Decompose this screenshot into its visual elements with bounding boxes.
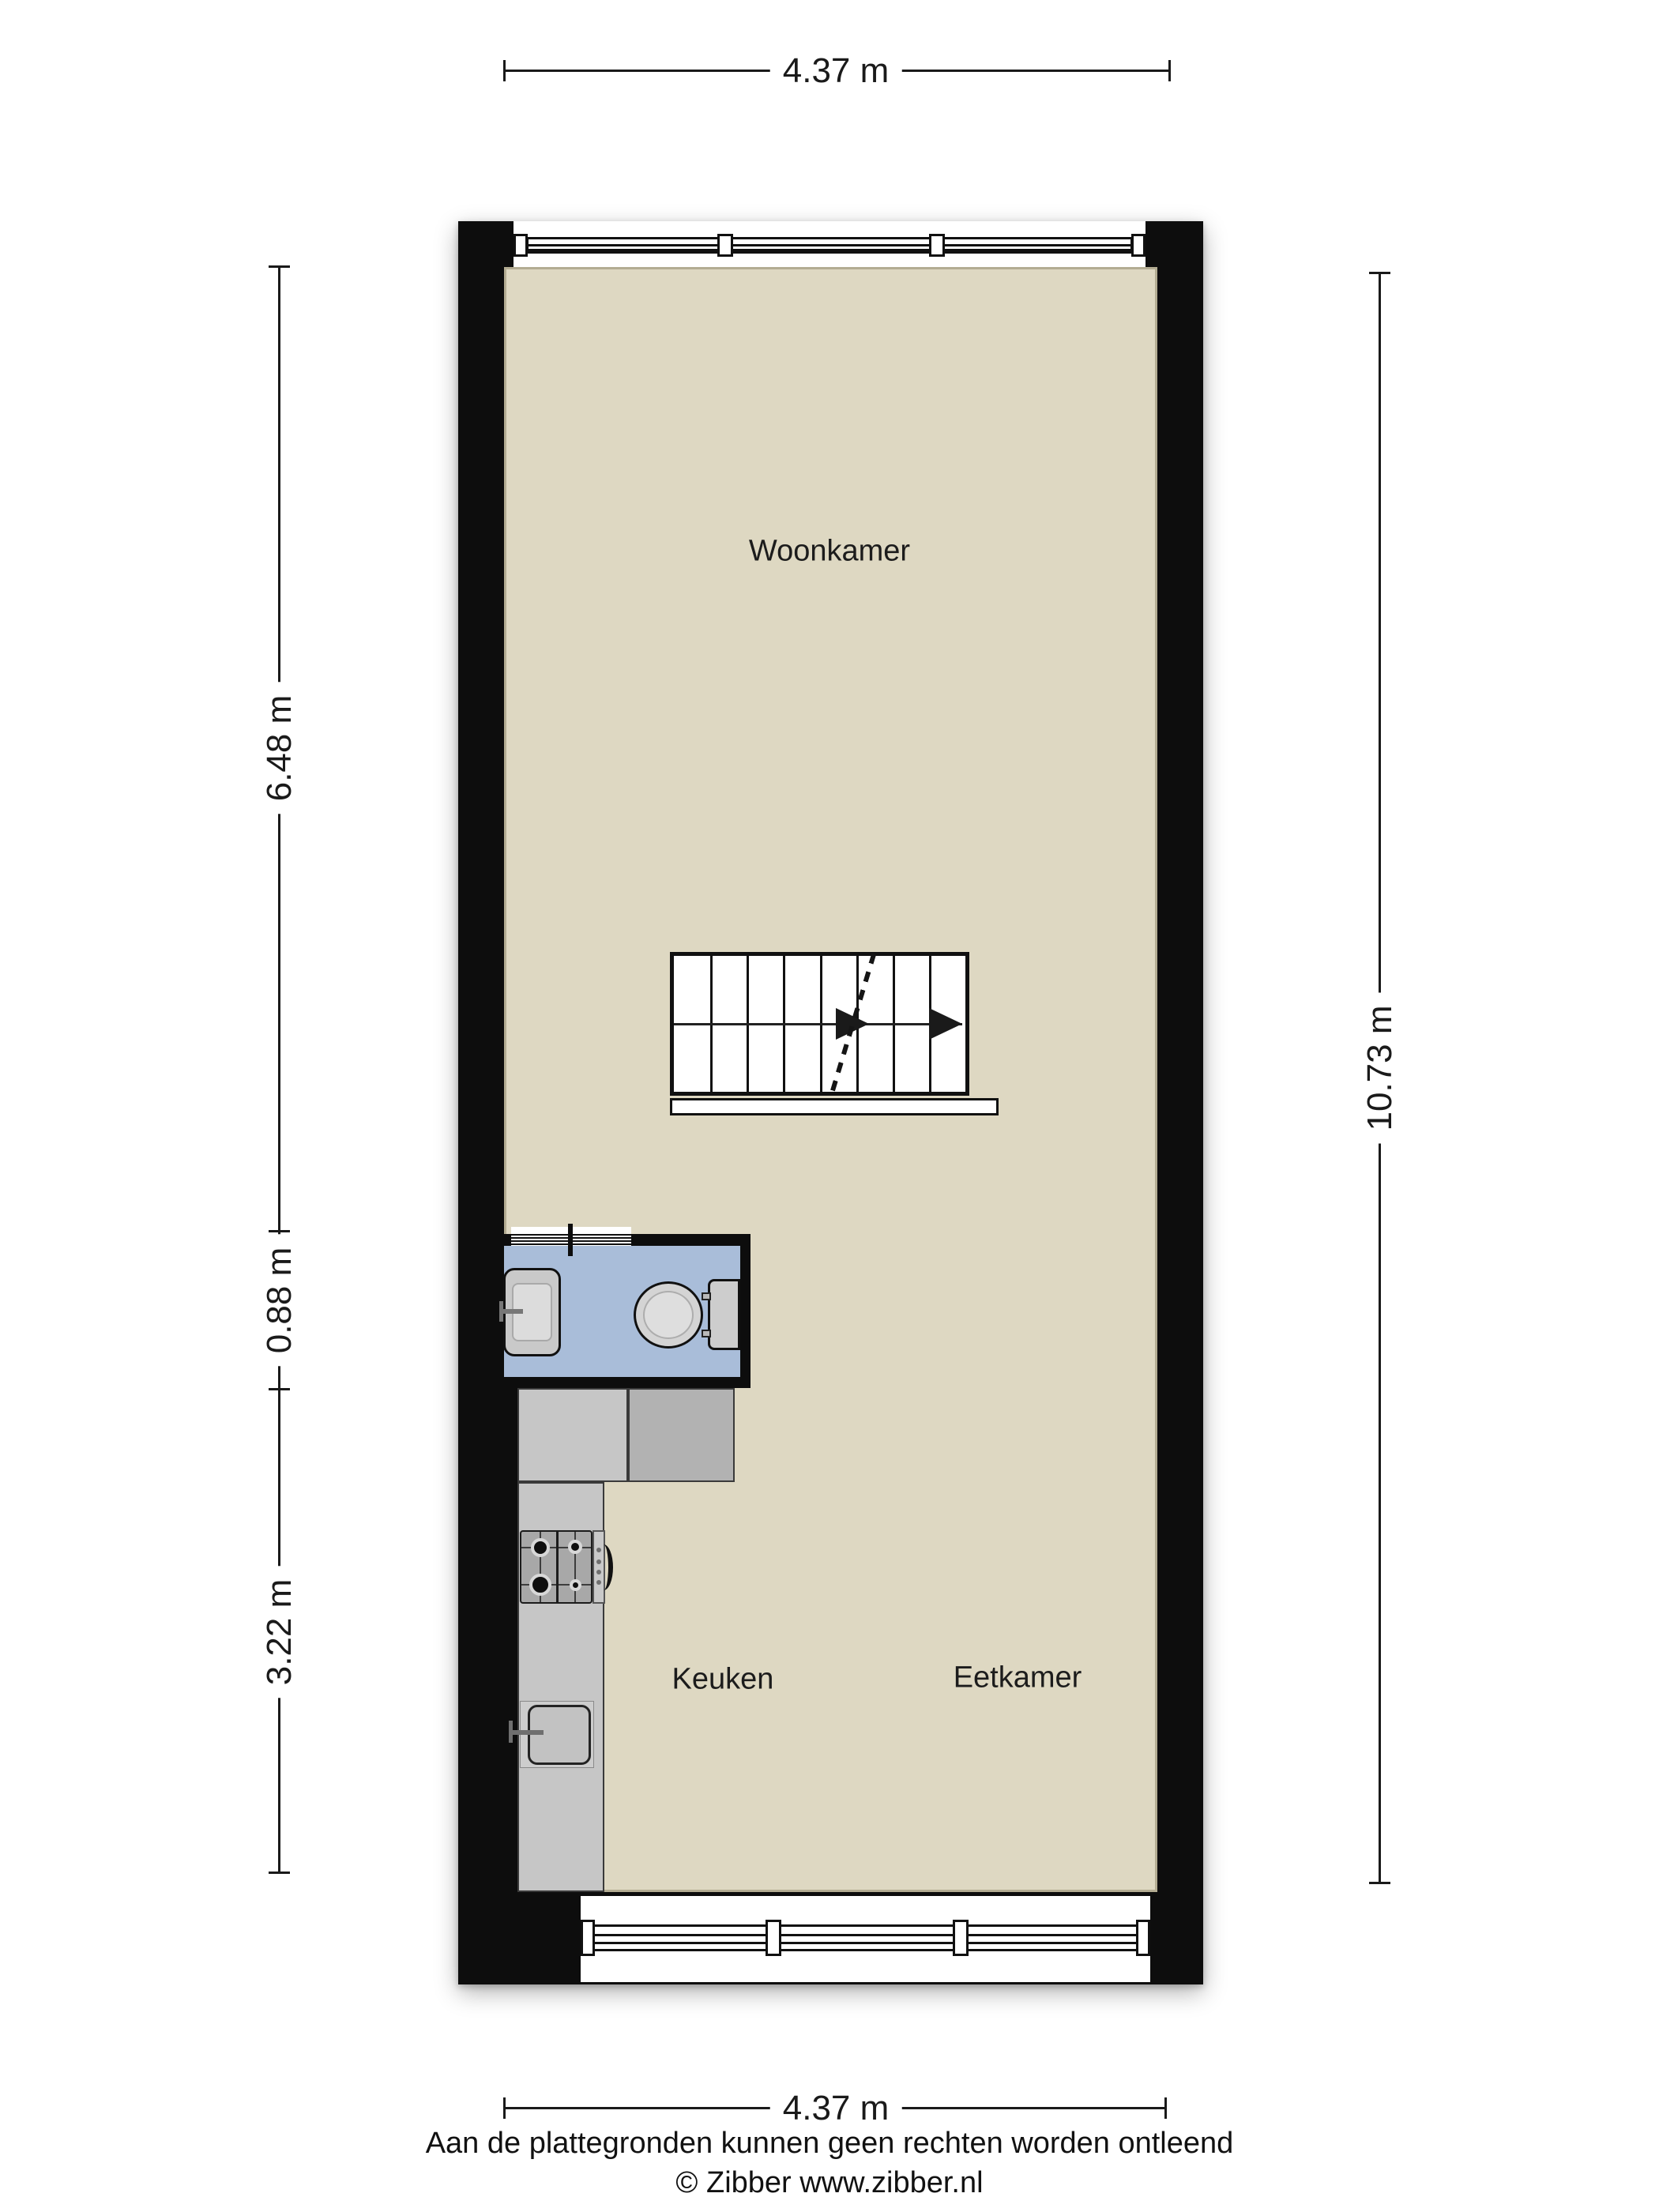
- window-top: [513, 221, 1145, 267]
- window-end-cap: [581, 1920, 595, 1956]
- kitchen-faucet: [512, 1730, 544, 1735]
- stove-knob: [596, 1548, 601, 1552]
- dimension-tick: [1369, 1882, 1390, 1884]
- dimension-tick: [269, 1230, 290, 1232]
- dimension-tick: [269, 1388, 290, 1390]
- burner: [531, 1538, 550, 1557]
- dimension-tick: [1164, 2097, 1167, 2119]
- window-end-cap: [1131, 234, 1145, 257]
- room-label-keuken: Keuken: [672, 1663, 774, 1697]
- window-glass: [526, 237, 1133, 254]
- burner: [529, 1574, 551, 1596]
- dimension-left-middle-label: 0.88 m: [258, 1235, 301, 1367]
- window-frame-line: [594, 1942, 1137, 1944]
- dimension-left-bottom-label: 3.22 m: [258, 1567, 301, 1698]
- washbasin-faucet: [502, 1309, 523, 1314]
- staircase: [670, 952, 969, 1096]
- footer-disclaimer: Aan de plattegronden kunnen geen rechten…: [0, 2127, 1659, 2161]
- toilet-hinge: [702, 1330, 711, 1337]
- stove-panel-divider: [556, 1532, 559, 1602]
- stair-landing: [670, 1098, 999, 1115]
- window-mullion: [953, 1920, 969, 1956]
- burner: [570, 1579, 581, 1591]
- dimension-bottom-label: 4.37 m: [770, 2087, 902, 2130]
- door-swing-mark: [568, 1224, 573, 1256]
- dimension-left-top-label: 6.48 m: [258, 683, 301, 814]
- stove-knob: [596, 1580, 601, 1585]
- stove-knob: [596, 1570, 601, 1574]
- dimension-right-label: 10.73 m: [1359, 993, 1401, 1144]
- window-frame-line: [594, 1934, 1137, 1936]
- stove-knob: [596, 1559, 601, 1564]
- stair-direction-line: [674, 1023, 962, 1025]
- kitchen-sink-basin: [528, 1705, 591, 1765]
- dimension-tick: [503, 60, 506, 81]
- window-mullion: [929, 234, 945, 257]
- floorplan-page: 4.37 m 6.48 m 0.88 m 3.22 m 10.73 m 4.37…: [0, 0, 1659, 2212]
- toilet-tank: [708, 1279, 740, 1350]
- window-frame-line: [529, 244, 1130, 246]
- stove: [520, 1530, 592, 1604]
- window-end-cap: [1136, 1920, 1150, 1956]
- toilet-seat: [643, 1291, 694, 1339]
- window-mullion: [766, 1920, 781, 1956]
- floorplan: Woonkamer Keuken Eetkamer: [458, 221, 1203, 1984]
- stair-direction-arrow: [929, 1008, 962, 1040]
- dimension-top-label: 4.37 m: [770, 50, 902, 92]
- window-bottom: [581, 1896, 1150, 1982]
- window-mullion: [717, 234, 733, 257]
- dimension-tick: [1369, 272, 1390, 274]
- kitchen-cabinet: [628, 1388, 735, 1482]
- kitchen-side-wall: [504, 1377, 517, 1892]
- toilet-bottom-wall: [504, 1377, 750, 1388]
- dimension-tick: [269, 265, 290, 268]
- room-label-eetkamer: Eetkamer: [954, 1661, 1082, 1695]
- window-end-cap: [513, 234, 528, 257]
- toilet-right-wall: [740, 1234, 750, 1388]
- dimension-tick: [269, 1872, 290, 1874]
- dimension-tick: [1168, 60, 1171, 81]
- footer-credit: © Zibber www.zibber.nl: [0, 2166, 1659, 2200]
- window-frame-line: [529, 249, 1130, 251]
- kitchen-counter-top: [517, 1388, 628, 1482]
- window-glass: [592, 1924, 1139, 1951]
- toilet-hinge: [702, 1292, 711, 1300]
- dimension-tick: [503, 2097, 506, 2119]
- toilet-bowl: [634, 1281, 703, 1349]
- burner: [568, 1540, 582, 1554]
- room-label-woonkamer: Woonkamer: [749, 535, 910, 569]
